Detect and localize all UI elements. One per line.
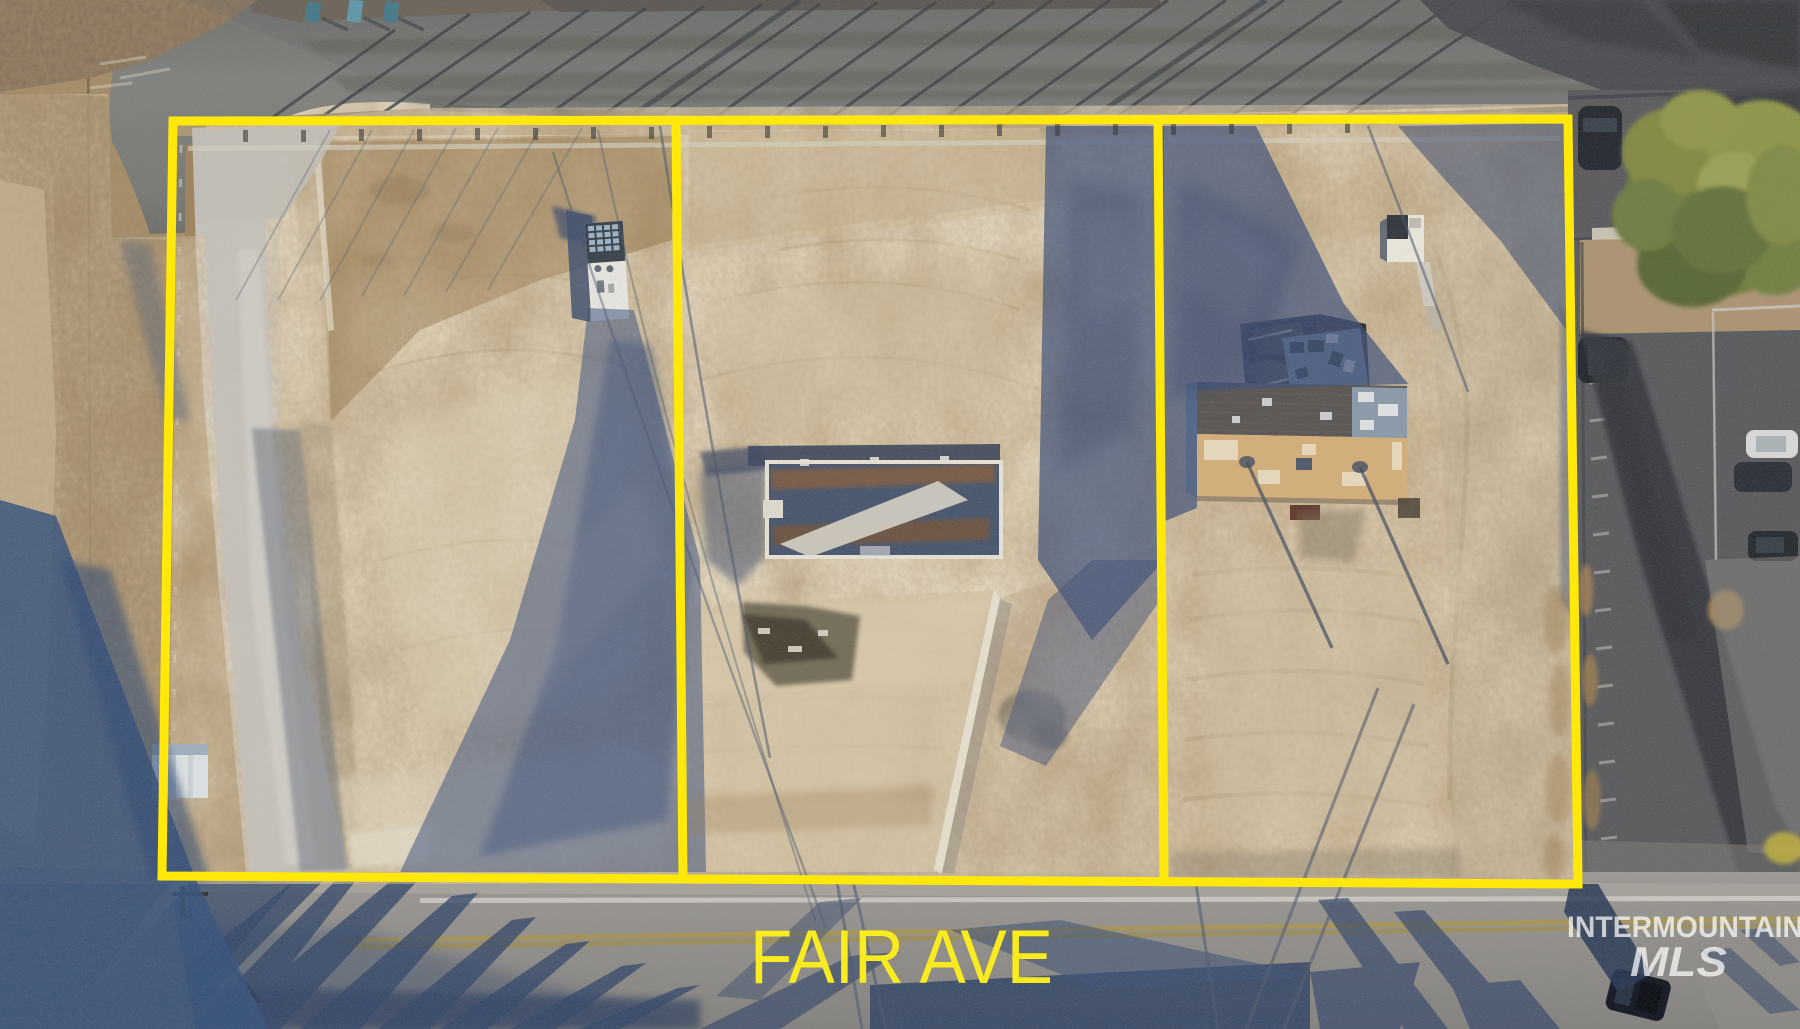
svg-text:MLS: MLS — [1630, 938, 1727, 985]
svg-text:FAIR AVE: FAIR AVE — [750, 915, 1053, 1000]
